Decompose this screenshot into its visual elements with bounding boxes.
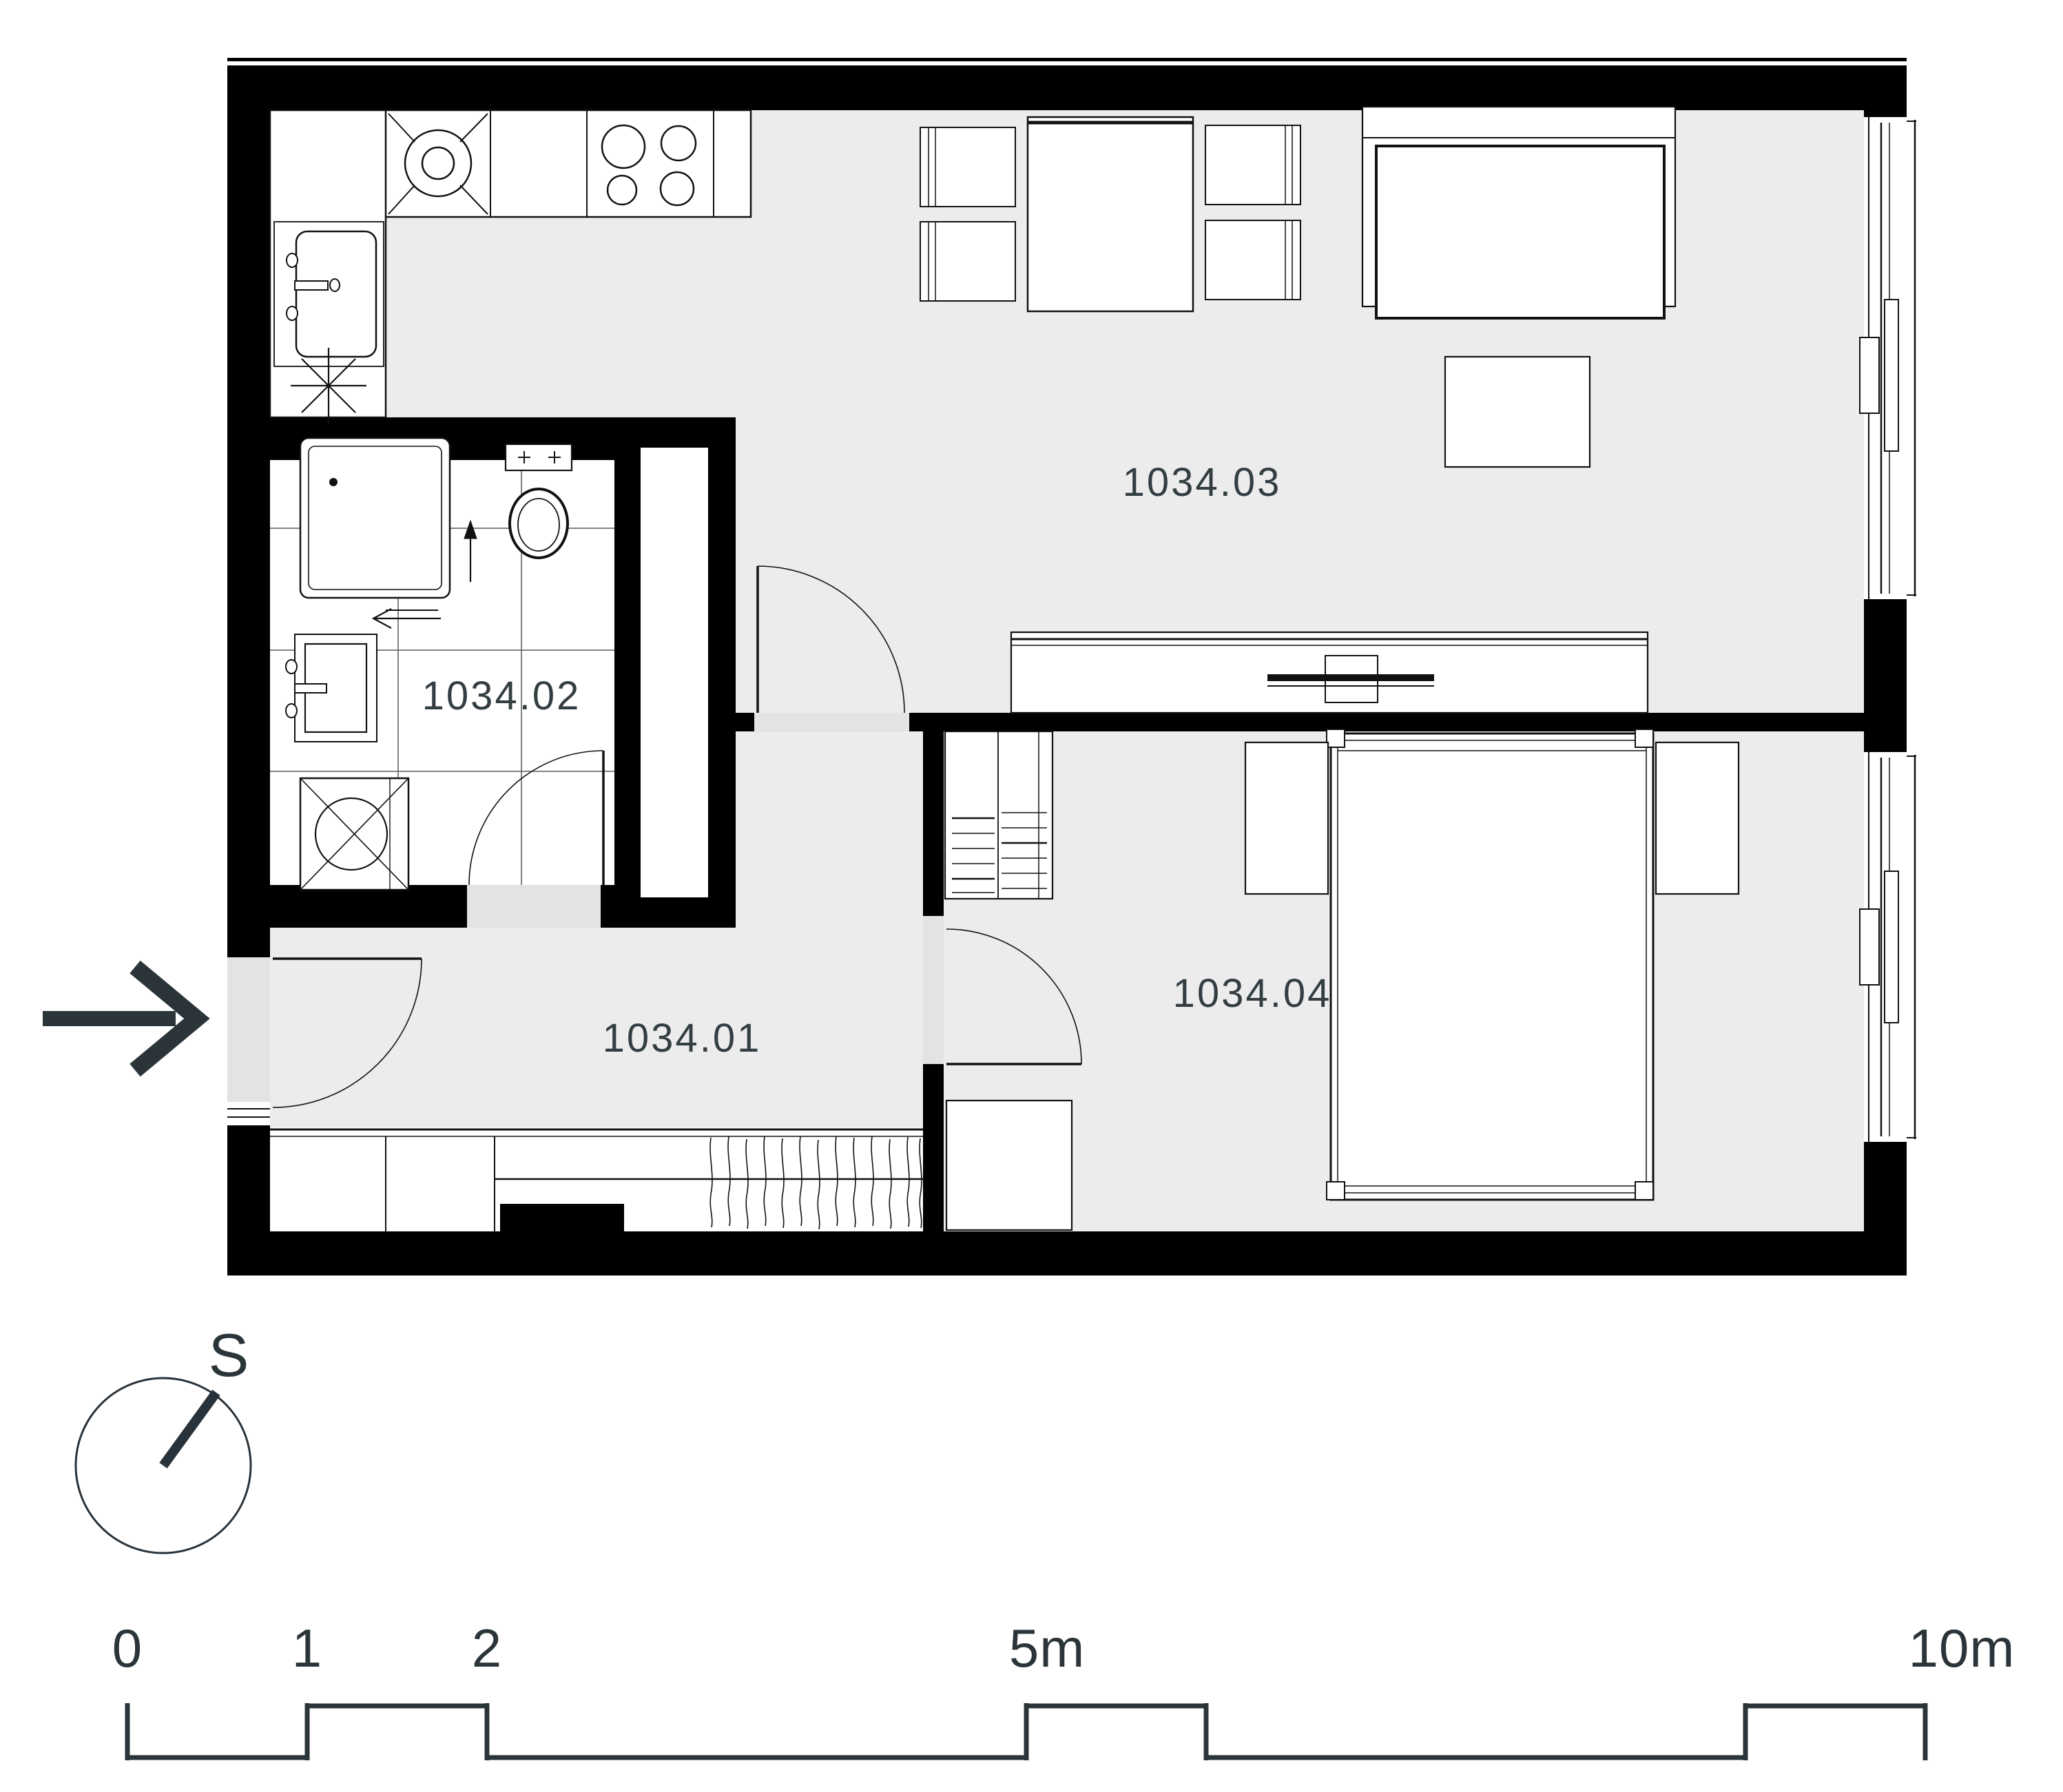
tv-sideboard — [1011, 632, 1648, 713]
dining-chair — [920, 127, 1015, 207]
room-label-1034-03: 1034.03 — [1123, 460, 1282, 505]
wall-bedroom-left-upper — [923, 731, 944, 916]
star-symbol-icon — [291, 348, 366, 424]
bed-post — [1635, 729, 1653, 747]
entrance-step — [227, 1102, 270, 1125]
compass-needle-icon — [163, 1393, 216, 1466]
bed-post — [1327, 1182, 1345, 1200]
scale-tick-10m: 10m — [1909, 1618, 2015, 1678]
scale-tick-2: 2 — [472, 1618, 502, 1678]
dining-chair — [1205, 125, 1300, 205]
dining-chair — [1205, 220, 1300, 300]
window-mullion — [1885, 871, 1898, 1023]
window-handle-icon — [1860, 337, 1879, 413]
room-label-1034-02: 1034.02 — [422, 674, 581, 718]
bed-post — [1635, 1182, 1653, 1200]
closet-block — [500, 1204, 624, 1231]
floor-plan-canvas: 1034.01 1034.02 1034.03 1034.04 S 0 1 2 … — [0, 0, 2063, 1792]
wall-right-middle — [1864, 596, 1907, 752]
double-bed — [1327, 729, 1653, 1200]
room-label-1034-04: 1034.04 — [1173, 971, 1332, 1016]
bed-post — [1327, 729, 1345, 747]
scale-bar — [127, 1703, 1925, 1760]
nightstand — [1245, 742, 1328, 894]
wall-top — [227, 65, 1907, 110]
sofa — [1362, 107, 1675, 318]
shower-icon — [300, 438, 450, 598]
bedroom-door-threshold — [923, 916, 944, 1064]
bedroom-window — [1860, 752, 1916, 1142]
dining-chair — [920, 222, 1015, 301]
entrance-arrow-icon — [43, 967, 197, 1070]
living-door-threshold — [754, 713, 909, 731]
wall-bottom — [227, 1231, 1907, 1275]
scale-tick-0: 0 — [112, 1618, 143, 1678]
bathroom-door-threshold — [467, 885, 601, 928]
wardrobe — [945, 731, 1053, 899]
washing-machine-icon — [300, 778, 408, 890]
toilet-icon — [506, 444, 572, 558]
nightstand — [1656, 742, 1739, 894]
wall-right-top — [1864, 65, 1907, 121]
wall-living-hall-stub — [736, 713, 754, 731]
coffee-table — [1445, 357, 1590, 467]
kitchen-sink-icon — [274, 222, 384, 366]
dining-table — [1028, 117, 1193, 311]
scale-tick-5m: 5m — [1009, 1618, 1085, 1678]
hallway-upper-floor — [736, 731, 923, 928]
window-mullion — [1885, 300, 1898, 451]
entrance-threshold — [227, 957, 270, 1102]
wash-basin-icon — [286, 634, 377, 742]
wall-right-bottom — [1864, 1142, 1907, 1231]
hall-closet — [270, 1127, 923, 1231]
wall-left-lower — [227, 1125, 270, 1231]
scale-tick-1: 1 — [292, 1618, 322, 1678]
bedroom-dresser — [946, 1101, 1072, 1230]
room-label-1034-01: 1034.01 — [603, 1016, 762, 1061]
top-outline-hairline — [227, 58, 1907, 61]
compass: S — [76, 1321, 251, 1553]
window-handle-icon — [1860, 909, 1879, 985]
wall-bedroom-left-lower — [923, 1064, 944, 1231]
wall-living-bedroom — [909, 713, 1864, 731]
duct-closet — [641, 448, 708, 897]
living-window — [1860, 117, 1916, 599]
compass-south-label: S — [209, 1321, 249, 1389]
scale-bar-labels: 0 1 2 5m 10m — [112, 1618, 2015, 1678]
